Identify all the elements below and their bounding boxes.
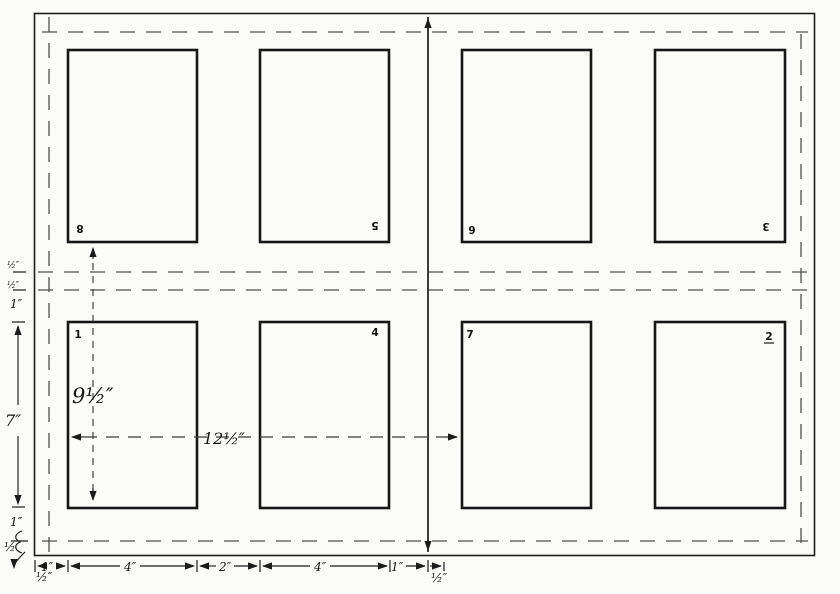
dim-label-left-seven: 7″ bbox=[5, 411, 21, 430]
page-number-top-4: 3 bbox=[762, 220, 769, 232]
dim-label-bottom-5: 1″ bbox=[391, 560, 404, 574]
page-number-bottom-2: 4 bbox=[371, 327, 378, 339]
dim-label-left-one-bottom: 1″ bbox=[10, 515, 23, 529]
dim-label-bottom-6: ½″ bbox=[431, 571, 448, 585]
page-outline-bottom-3 bbox=[462, 322, 591, 508]
page-outline-top-2 bbox=[260, 50, 389, 242]
page-outline-top-3 bbox=[462, 50, 591, 242]
dim-label-left-half-b: ½″ bbox=[7, 280, 20, 291]
page-number-top-1: 8 bbox=[76, 222, 83, 234]
bottom-dimension-chain: 1″ 4″ 2″ 4″ 1″ ½″ bbox=[35, 560, 448, 585]
dim-label-9half: 9½″ bbox=[72, 384, 114, 408]
page-outline-bottom-1 bbox=[68, 322, 197, 508]
page-number-bottom-4: 2 bbox=[765, 331, 772, 343]
dim-label-corner-half: ½″ bbox=[36, 570, 53, 584]
dim-label-bottom-3: 2″ bbox=[218, 560, 232, 574]
sheet-border bbox=[35, 14, 815, 556]
dim-label-bottom-2: 4″ bbox=[123, 560, 137, 574]
page-outline-top-1 bbox=[68, 50, 197, 242]
left-brace bbox=[16, 531, 22, 553]
page-number-bottom-1: 1 bbox=[74, 329, 81, 341]
scanned-diagram-page: 8 5 6 3 1 4 7 2 9½″ 12½″ 1″ 4″ 2″ 4″ bbox=[0, 0, 840, 594]
page-number-bottom-3: 7 bbox=[466, 329, 473, 341]
left-corner-curved-arrow bbox=[14, 552, 25, 568]
dim-label-left-half-a: ½″ bbox=[7, 260, 20, 271]
page-outline-bottom-4 bbox=[655, 322, 785, 508]
page-number-top-3: 6 bbox=[468, 223, 475, 235]
dim-label-bottom-4: 4″ bbox=[313, 560, 327, 574]
page-outline-bottom-2 bbox=[260, 322, 389, 508]
left-dimension-chain: ½″ ½″ 1″ 7″ 1″ ½ ½″ bbox=[4, 260, 53, 584]
page-outline-top-4 bbox=[655, 50, 785, 242]
dim-label-left-half-c: ½ bbox=[4, 540, 16, 554]
page-number-top-2: 5 bbox=[371, 219, 378, 231]
dim-label-12half: 12½″ bbox=[203, 429, 245, 448]
dim-label-left-one-top: 1″ bbox=[10, 297, 23, 311]
imposition-diagram: 8 5 6 3 1 4 7 2 9½″ 12½″ 1″ 4″ 2″ 4″ bbox=[0, 0, 840, 594]
